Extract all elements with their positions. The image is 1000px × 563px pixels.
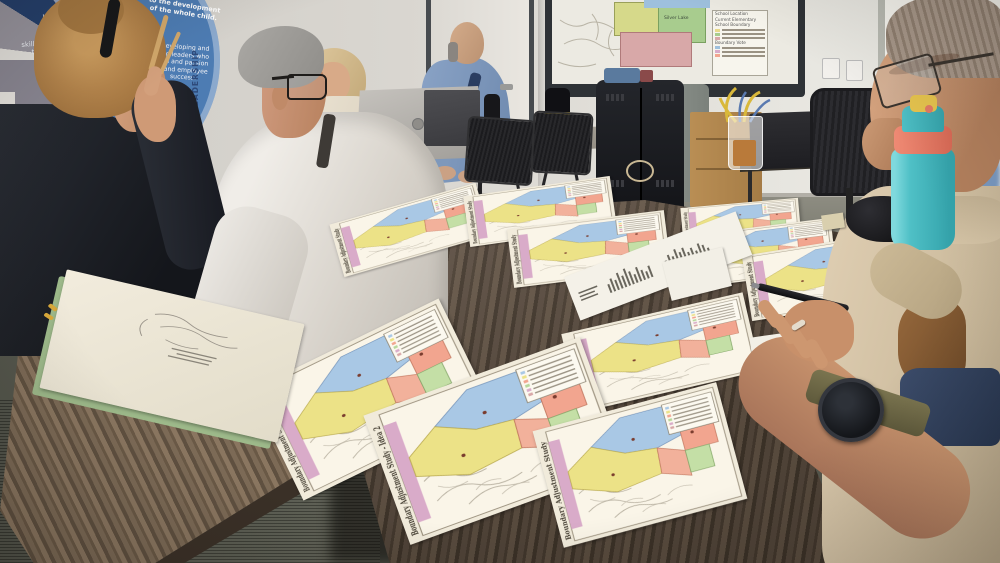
cart-vent <box>656 180 674 187</box>
projected-region-label: Silver Lake <box>664 16 689 21</box>
cup-contents <box>733 140 756 166</box>
cart-badge <box>626 160 654 182</box>
projected-legend: School Location Current Elementary Schoo… <box>712 10 768 76</box>
cart-door-seam <box>640 88 642 200</box>
projected-region-blue <box>644 0 710 8</box>
plastic-cup <box>728 116 763 170</box>
meeting-room-photo: to the development of the whole child. I… <box>0 0 1000 563</box>
folding-chair <box>464 116 536 187</box>
light-switch <box>846 60 863 81</box>
supply-bin-red <box>640 70 653 82</box>
legend-boundary-vote: Boundary Vote <box>715 41 765 46</box>
door-handle <box>500 84 513 90</box>
supply-bin-blue <box>604 68 640 83</box>
legend-school-location: School Location <box>715 12 765 17</box>
cart-vent <box>656 94 674 101</box>
projected-map: Silver Lake School Location Current Elem… <box>552 0 798 84</box>
watch-face <box>818 378 884 442</box>
thermostat <box>822 58 840 79</box>
teal-bottle-button <box>925 105 933 113</box>
cart-vent <box>606 94 624 101</box>
projected-region-pink <box>620 32 692 67</box>
teal-bottle-body <box>891 148 955 250</box>
standing-man-hair <box>448 42 458 62</box>
hp-logo <box>412 118 424 130</box>
folding-chair <box>530 110 593 175</box>
whiteboard-eraser <box>821 213 845 231</box>
